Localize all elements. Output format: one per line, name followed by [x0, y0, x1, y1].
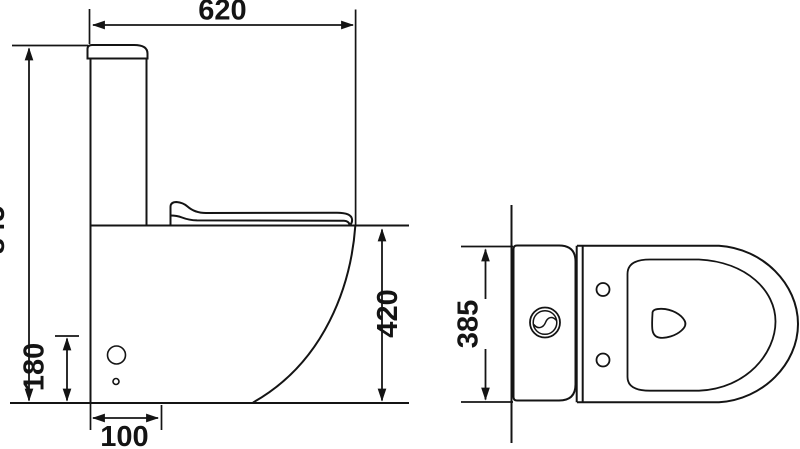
label-overall-depth: 620	[198, 0, 246, 27]
fixing-hole-small	[113, 379, 119, 385]
flush-button-split-icon	[534, 318, 556, 328]
label-outlet-height: 180	[19, 343, 51, 391]
toilet-side-outline	[10, 45, 409, 403]
hinge-hole-bottom	[597, 354, 610, 367]
fixing-hole-large	[108, 346, 126, 364]
side-view	[10, 9, 409, 430]
label-overall-width: 385	[453, 300, 485, 348]
cistern-lid-side	[88, 45, 148, 59]
bowl-plan-outline	[577, 246, 798, 403]
flush-water-outlet	[652, 309, 685, 338]
toilet-top-outline	[514, 246, 799, 403]
top-view	[461, 205, 798, 443]
label-bowl-height: 420	[372, 289, 404, 337]
technical-drawing-canvas: 620 845 420 385 180 100	[0, 0, 800, 449]
extension-lines-side	[12, 9, 356, 430]
seat-profile-bottom	[171, 216, 350, 225]
hinge-hole-top	[597, 283, 610, 296]
technical-drawing-page: 620 845 420 385 180 100	[0, 0, 800, 449]
seat-inner-outline	[628, 260, 776, 391]
label-overall-height: 845	[0, 206, 11, 254]
label-outlet-setout: 100	[100, 421, 148, 449]
bowl-front-curve	[253, 226, 355, 403]
